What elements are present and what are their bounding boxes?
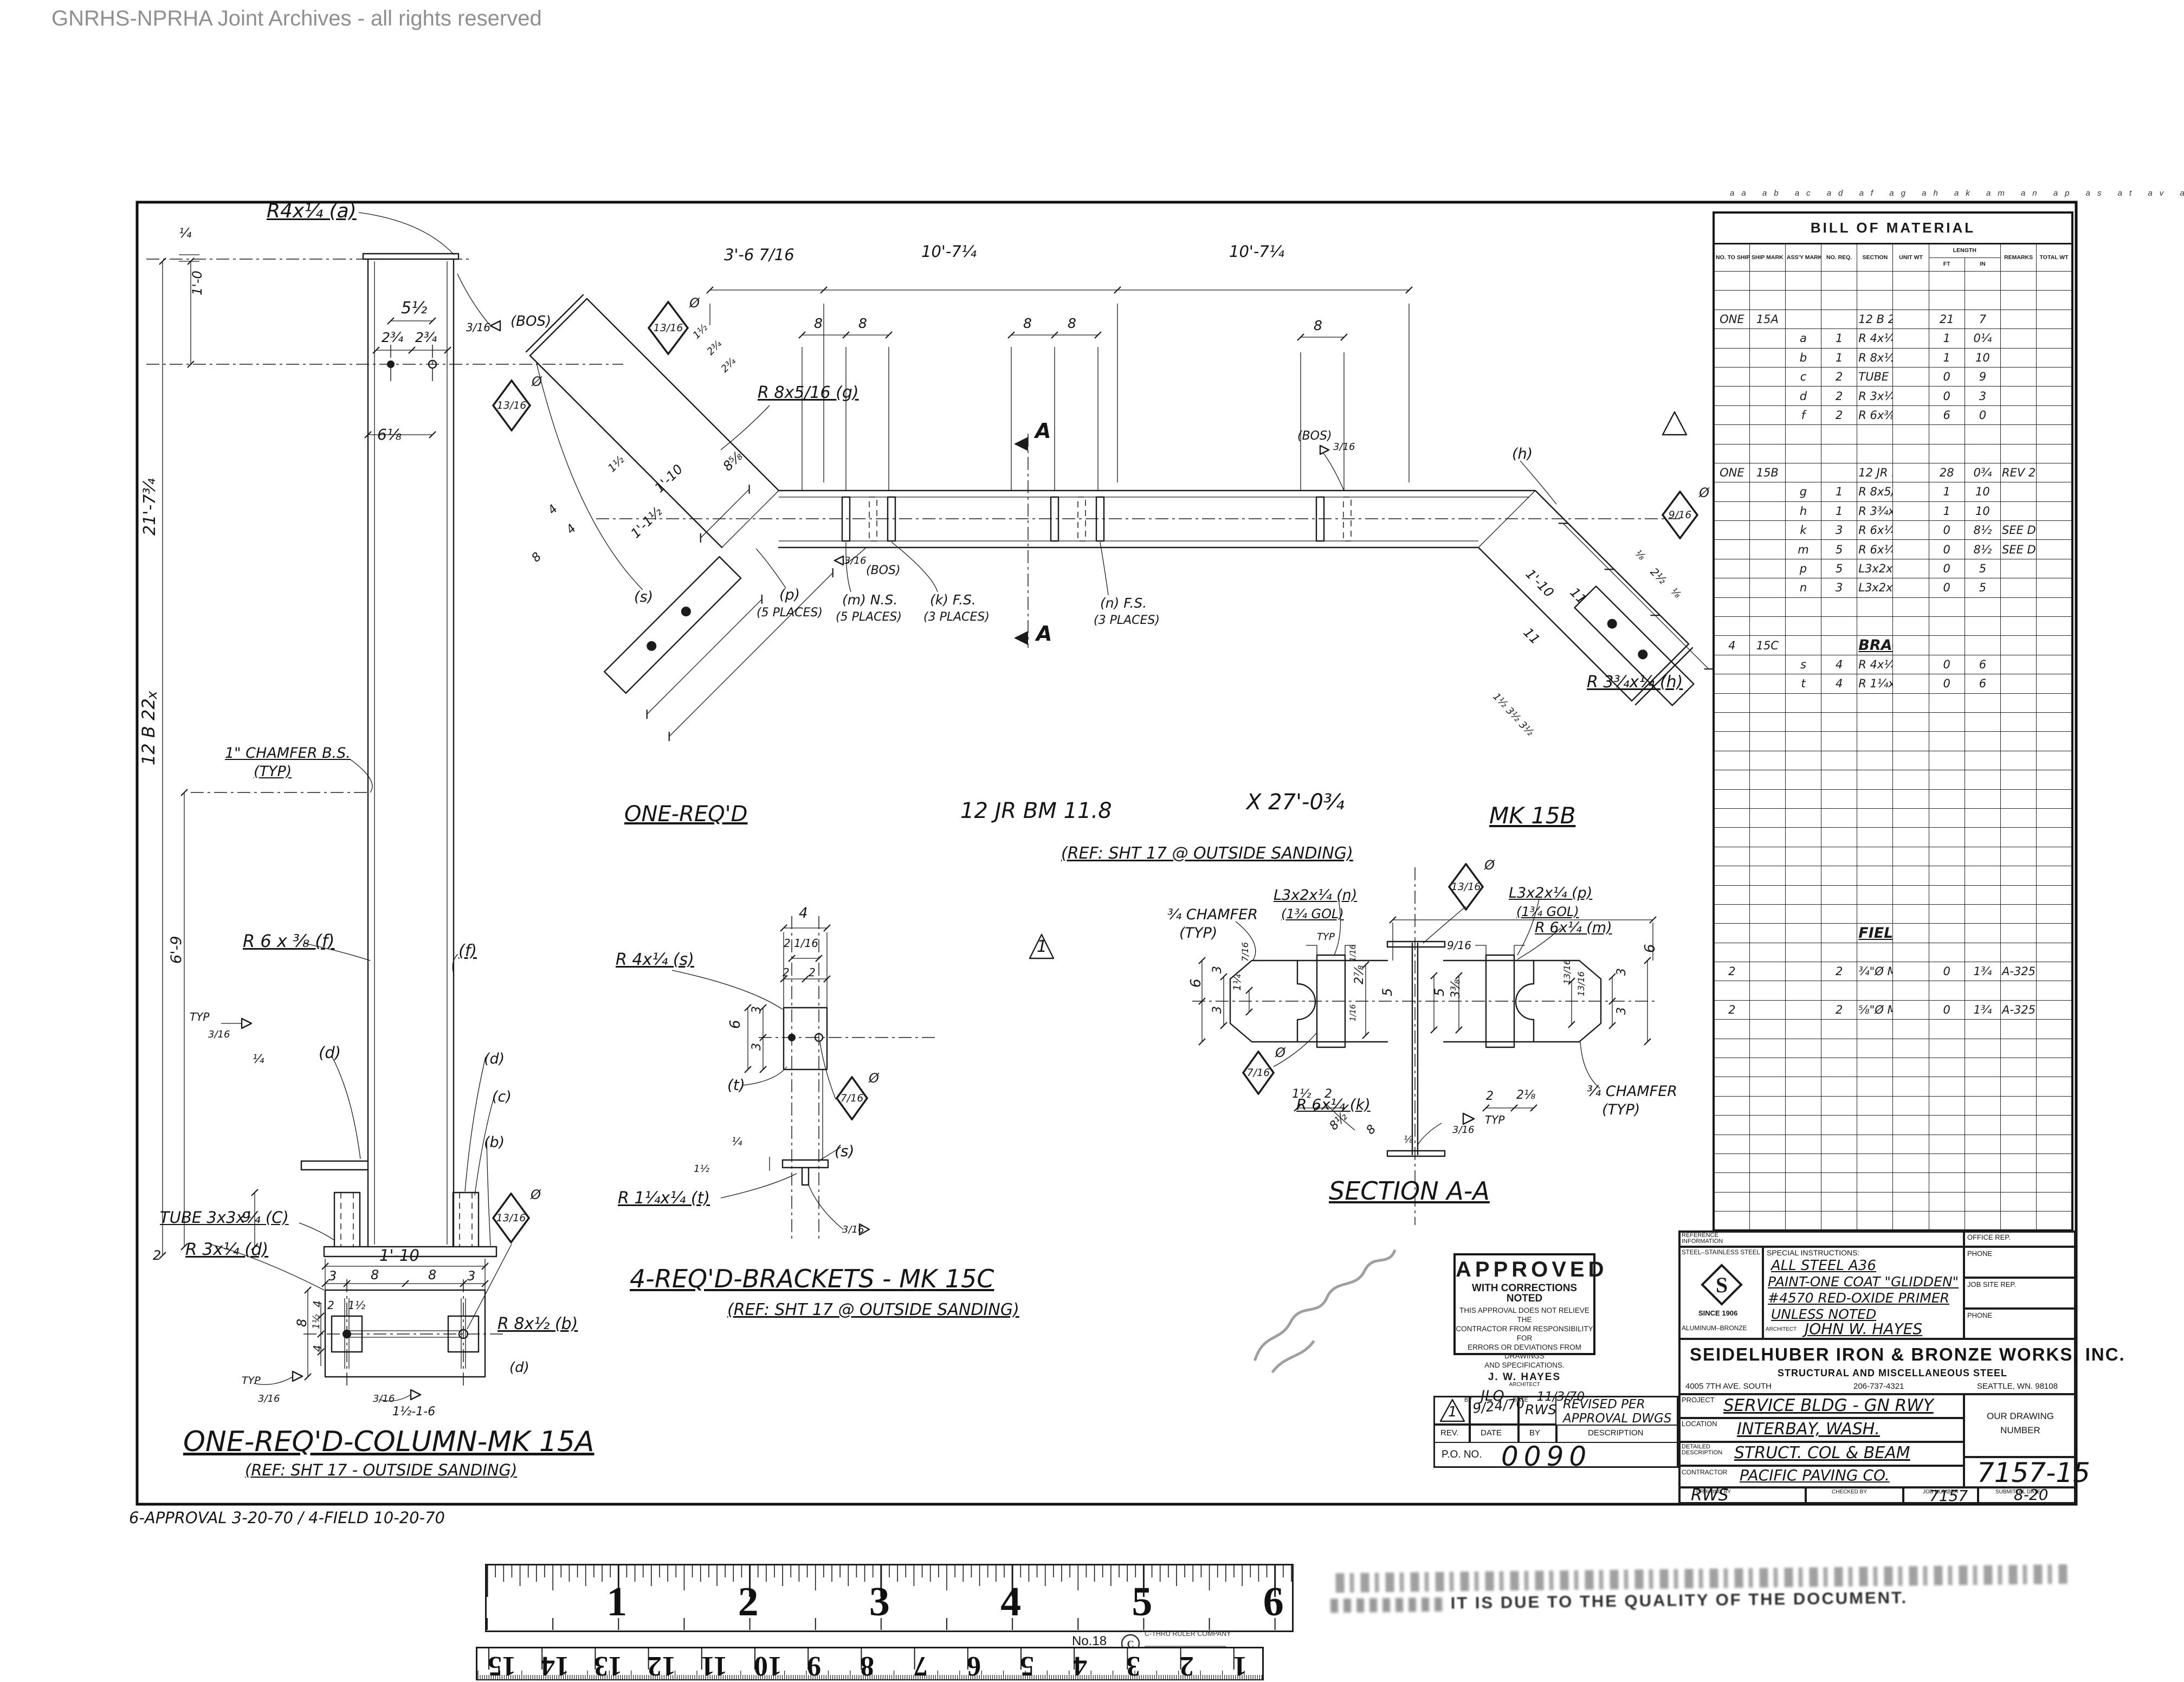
- bom-cell: [1714, 828, 1749, 847]
- bom-cell: [1785, 712, 1821, 731]
- bom-row: m5R 6x¼08½SEE DET: [1714, 540, 2072, 559]
- bom-cell: [1893, 1135, 1929, 1153]
- bom-cell: [1893, 310, 1929, 328]
- bom-cell: [1714, 655, 1749, 674]
- bom-cell: [1749, 1058, 1785, 1077]
- bom-cell: [1785, 885, 1821, 904]
- drawing-annotation: 4: [312, 1300, 323, 1307]
- bom-cell: 4: [1714, 636, 1749, 655]
- bom-cell: [2037, 674, 2072, 693]
- bom-cell: [1965, 291, 2000, 310]
- bom-cell: [1893, 348, 1929, 367]
- ruler-brand: C-THRU RULER COMPANY: [1145, 1631, 1231, 1638]
- bom-cell: 1¾: [1965, 962, 2000, 981]
- drawing-annotation: ¼: [179, 227, 191, 240]
- bom-cell: [1965, 693, 2000, 712]
- bom-cell: [1714, 904, 1749, 923]
- drawing-annotation: 3/16: [258, 1394, 280, 1404]
- bom-cell: [1714, 1192, 1749, 1211]
- reverse-ruler-number: 5: [1020, 1650, 1034, 1682]
- bom-cell: [1857, 272, 1893, 291]
- bom-cell: [1749, 904, 1785, 923]
- bom-cell: [1929, 597, 1965, 616]
- bom-cell: 2: [1821, 962, 1857, 981]
- bom-cell: 21: [1929, 310, 1965, 328]
- bom-cell: ¾"Ø M.BOLT: [1857, 962, 1893, 981]
- bom-cell: 0: [1929, 674, 1965, 693]
- bom-cell: [1893, 962, 1929, 981]
- bom-row: [1714, 847, 2072, 866]
- bom-cell: m: [1785, 540, 1821, 559]
- bom-cell: [1714, 770, 1749, 789]
- bom-cell: [2037, 981, 2072, 1000]
- drawing-annotation: 8: [371, 1268, 379, 1281]
- contractor-label: CONTRACTOR: [1682, 1469, 1727, 1475]
- bom-cell: [1785, 1173, 1821, 1192]
- bom-cell: 7: [1965, 310, 2000, 328]
- bom-cell: [1785, 904, 1821, 923]
- bom-row: [1714, 943, 2072, 962]
- drawing-annotation: 1/16: [1349, 1004, 1357, 1021]
- bom-cell: [1929, 1058, 1965, 1077]
- bom-cell: [1893, 770, 1929, 789]
- bom-cell: ONE: [1714, 463, 1749, 482]
- stamp-body: THIS APPROVAL DOES NOT RELIEVE THE CONTR…: [1456, 1306, 1593, 1370]
- drawing-annotation: 6: [728, 1020, 742, 1029]
- bom-cell: [1893, 904, 1929, 923]
- bom-cell: [1785, 693, 1821, 712]
- drawing-annotation: (p): [779, 588, 800, 602]
- drawing-annotation: 1: [1037, 939, 1047, 955]
- bom-row: [1714, 981, 2072, 1000]
- bom-cell: [2037, 885, 2072, 904]
- bom-cell: 28: [1929, 463, 1965, 482]
- bom-cell: [1714, 1116, 1749, 1135]
- bom-cell: [1785, 866, 1821, 885]
- bom-cell: [2001, 1096, 2037, 1115]
- bom-cell: [1929, 732, 1965, 751]
- drawing-number-label: OUR DRAWING NUMBER: [1982, 1409, 2058, 1437]
- bom-cell: [1929, 272, 1965, 291]
- bom-cell: [1857, 866, 1893, 885]
- bom-cell: [1965, 712, 2000, 731]
- bom-row: [1714, 1039, 2072, 1058]
- drawing-annotation: 12 B 22: [140, 698, 157, 765]
- drawing-annotation: R 3x¼ (d): [185, 1241, 268, 1258]
- bom-cell: [1929, 1153, 1965, 1172]
- drawing-annotation: 8: [295, 1319, 308, 1327]
- bom-cell: [1893, 444, 1929, 463]
- bom-cell: [2001, 712, 2037, 731]
- bom-cell: [1857, 732, 1893, 751]
- bom-cell: 15A: [1749, 310, 1785, 328]
- bom-cell: [1714, 329, 1749, 348]
- bom-cell: [2001, 405, 2037, 424]
- bom-cell: [1893, 329, 1929, 348]
- bom-row: n3L3x2x¼05: [1714, 578, 2072, 597]
- hole-callout-diamond: 13/16Ø: [648, 301, 689, 355]
- drawing-annotation: ¼: [253, 1054, 264, 1066]
- drawing-annotation: 6⅛: [377, 427, 402, 442]
- drawing-annotation: 4: [799, 906, 808, 920]
- hole-callout-diamond: 9/16Ø: [1662, 491, 1698, 539]
- bom-cell: [2001, 272, 2037, 291]
- bom-cell: 0¾: [1965, 463, 2000, 482]
- logo-since: SINCE 1906: [1698, 1310, 1737, 1317]
- bom-cell: [1749, 1173, 1785, 1192]
- bom-cell: [1929, 770, 1965, 789]
- drawing-annotation: (3 PLACES): [1094, 615, 1160, 627]
- bom-cell: [2001, 828, 2037, 847]
- drawing-annotation: 2: [783, 967, 790, 978]
- bom-cell: [1965, 1192, 2000, 1211]
- drawing-annotation: 6: [1189, 978, 1203, 988]
- bom-cell: [1821, 1211, 1857, 1230]
- reverse-ruler-number: 7: [914, 1650, 928, 1682]
- bom-row: p5L3x2x¼05: [1714, 559, 2072, 578]
- bom-cell: c: [1785, 367, 1821, 386]
- bom-cell: 10: [1965, 501, 2000, 520]
- bom-cell: 5: [1821, 559, 1857, 578]
- bom-row: 415CBRACKETS: [1714, 636, 2072, 655]
- bom-row: 22⅝"Ø M.BOLT01¾A-325 H.T.B.: [1714, 1000, 2072, 1019]
- drawing-sheet: GNRHS-NPRHA Joint Archives - all rights …: [0, 0, 2184, 1680]
- bom-cell: 0: [1929, 521, 1965, 540]
- drawing-annotation: 3/16: [1333, 442, 1355, 452]
- bom-cell: 8½: [1965, 540, 2000, 559]
- bom-cell: [1749, 1000, 1785, 1019]
- bom-cell: [1749, 1039, 1785, 1058]
- bom-cell: [2037, 578, 2072, 597]
- bom-cell: [2037, 847, 2072, 866]
- bom-cell: [1785, 1020, 1821, 1039]
- bom-cell: [1965, 847, 2000, 866]
- bom-row: [1714, 291, 2072, 310]
- bom-header: REMARKS: [2001, 244, 2037, 272]
- drawing-annotation: 6'-9: [169, 936, 184, 964]
- bom-cell: [1749, 847, 1785, 866]
- bom-row: [1714, 732, 2072, 751]
- drawing-annotation: (s): [634, 590, 653, 604]
- office-rep-label: OFFICE REP.: [1967, 1234, 2011, 1241]
- drawing-annotation: R 6 x ⅜ (f): [243, 932, 334, 950]
- bom-cell: [1749, 866, 1785, 885]
- bom-cell: [1749, 1135, 1785, 1153]
- revision-by: RWS: [1525, 1403, 1556, 1416]
- bom-cell: [1929, 636, 1965, 655]
- drawing-annotation: 1'-0: [191, 270, 204, 295]
- drawing-annotation: 1/16: [1349, 945, 1357, 962]
- special-instructions-label: SPECIAL INSTRUCTIONS:: [1767, 1249, 1859, 1256]
- bom-cell: [1785, 1135, 1821, 1153]
- bom-cell: [2001, 770, 2037, 789]
- bom-cell: [1749, 405, 1785, 424]
- drawing-annotation: 3/16: [466, 322, 490, 333]
- bom-cell: [1893, 272, 1929, 291]
- drawing-annotation: 2: [153, 1249, 161, 1262]
- bom-row: [1714, 866, 2072, 885]
- bom-cell: h: [1785, 501, 1821, 520]
- bom-cell: [1893, 1058, 1929, 1077]
- bom-cell: [1749, 943, 1785, 962]
- ruler-number: 6: [1263, 1578, 1284, 1626]
- bom-row: [1714, 751, 2072, 770]
- bom-cell: [1749, 885, 1785, 904]
- bom-cell: [1785, 272, 1821, 291]
- bom-cell: [1929, 866, 1965, 885]
- bom-cell: [1893, 367, 1929, 386]
- bom-cell: [1857, 904, 1893, 923]
- bom-cell: [1749, 540, 1785, 559]
- bom-cell: [1785, 291, 1821, 310]
- bom-cell: [1821, 1096, 1857, 1115]
- bom-cell: TUBE 3x3x¼: [1857, 367, 1893, 386]
- bom-cell: [1857, 1135, 1893, 1153]
- bom-cell: R 6x¼: [1857, 521, 1893, 540]
- bom-cell: [1857, 693, 1893, 712]
- bom-cell: [1965, 904, 2000, 923]
- drawing-annotation: 3/16: [844, 556, 866, 566]
- bom-row: ONE15A12 B 22217: [1714, 310, 2072, 328]
- bom-header-ft: FT: [1929, 258, 1965, 272]
- bom-cell: [2001, 578, 2037, 597]
- drawing-annotation: 3: [1616, 968, 1628, 976]
- bom-cell: [1714, 578, 1749, 597]
- submittal-value: 8-20: [2014, 1487, 2049, 1503]
- bom-cell: [1785, 1211, 1821, 1230]
- reverse-ruler-number: 3: [1126, 1650, 1140, 1682]
- svg-text:S: S: [1716, 1273, 1728, 1297]
- bom-cell: [1893, 1020, 1929, 1039]
- bom-cell: [1749, 1211, 1785, 1230]
- bom-cell: [1714, 1211, 1749, 1230]
- bom-cell: [1893, 540, 1929, 559]
- bom-cell: [1714, 732, 1749, 751]
- bom-cell: [1714, 521, 1749, 540]
- bom-cell: [2037, 962, 2072, 981]
- bom-cell: [1857, 425, 1893, 444]
- bom-cell: [2001, 501, 2037, 520]
- bom-cell: [1893, 425, 1929, 444]
- bom-cell: [1893, 291, 1929, 310]
- bom-cell: 5: [1821, 540, 1857, 559]
- bom-cell: [1749, 597, 1785, 616]
- bom-cell: [2037, 924, 2072, 943]
- drawing-annotation: (TYP): [254, 764, 292, 779]
- bom-cell: [1929, 943, 1965, 962]
- bom-cell: BRACKETS: [1857, 636, 1893, 655]
- bom-cell: [1893, 866, 1929, 885]
- bom-row: FIELD BOLTS: [1714, 924, 2072, 943]
- bom-cell: [2037, 597, 2072, 616]
- drawing-annotation: 4: [312, 1345, 323, 1352]
- bom-cell: [1749, 386, 1785, 405]
- bom-cell: p: [1785, 559, 1821, 578]
- bom-cell: [1821, 712, 1857, 731]
- bom-cell: [1893, 1173, 1929, 1192]
- bom-cell: [2037, 943, 2072, 962]
- bom-cell: [1785, 847, 1821, 866]
- drawing-annotation: A: [1036, 623, 1052, 644]
- drawing-annotation: (d): [509, 1361, 529, 1375]
- bom-cell: [1714, 1077, 1749, 1096]
- bom-cell: [1785, 1000, 1821, 1019]
- bom-cell: [1893, 655, 1929, 674]
- bom-cell: [2001, 291, 2037, 310]
- bom-cell: [1857, 444, 1893, 463]
- bom-cell: [1929, 924, 1965, 943]
- bom-cell: R 3x¼: [1857, 386, 1893, 405]
- drawing-annotation: (m) N.S.: [842, 593, 897, 607]
- bom-cell: [1714, 1135, 1749, 1153]
- bom-cell: L3x2x¼: [1857, 578, 1893, 597]
- bom-cell: [1821, 1116, 1857, 1135]
- bom-cell: [1749, 674, 1785, 693]
- bom-cell: [1785, 310, 1821, 328]
- bom-cell: [2001, 866, 2037, 885]
- bom-cell: [1857, 828, 1893, 847]
- bom-cell: [1965, 1039, 2000, 1058]
- bom-cell: [1821, 463, 1857, 482]
- bom-cell: [1857, 885, 1893, 904]
- bom-cell: [1714, 367, 1749, 386]
- hole-callout-diamond: 7/16Ø: [1242, 1051, 1275, 1095]
- bom-cell: [1929, 617, 1965, 636]
- bom-cell: 0: [1965, 405, 2000, 424]
- bom-cell: [1929, 444, 1965, 463]
- bom-cell: [2001, 1211, 2037, 1230]
- bom-cell: [1749, 1096, 1785, 1115]
- bom-cell: [1821, 770, 1857, 789]
- bom-cell: 9: [1965, 367, 2000, 386]
- stamp-architect-name: J. W. HAYES: [1456, 1372, 1593, 1382]
- bom-cell: [1929, 808, 1965, 827]
- bom-cell: [1821, 828, 1857, 847]
- bom-cell: A-325 H.T.B.: [2001, 1000, 2037, 1019]
- bom-cell: [1893, 482, 1929, 501]
- company-city: SEATTLE, WN. 98108: [1977, 1382, 2058, 1390]
- bom-cell: [1965, 885, 2000, 904]
- bom-cell: [1929, 1192, 1965, 1211]
- bom-cell: n: [1785, 578, 1821, 597]
- bom-cell: [1749, 329, 1785, 348]
- bom-cell: [1929, 1135, 1965, 1153]
- bom-cell: [2037, 828, 2072, 847]
- bom-cell: [1965, 981, 2000, 1000]
- drawing-annotation: 8: [1068, 317, 1076, 330]
- bom-cell: b: [1785, 348, 1821, 367]
- bom-cell: [2037, 1020, 2072, 1039]
- reverse-ruler-number: 9: [807, 1650, 821, 1682]
- drawing-annotation: 2⅞: [1354, 965, 1366, 984]
- bom-cell: [1714, 693, 1749, 712]
- drawing-annotation: (1¾ GOL): [1281, 907, 1344, 920]
- drawing-annotation: (5 PLACES): [836, 611, 902, 623]
- bom-cell: [2037, 866, 2072, 885]
- bom-cell: [1785, 1116, 1821, 1135]
- bom-cell: [2001, 655, 2037, 674]
- bom-cell: 0: [1929, 559, 1965, 578]
- bom-cell: [1893, 1039, 1929, 1058]
- architect-label: ARCHITECT: [1766, 1327, 1797, 1332]
- drawing-annotation: 1½: [694, 1164, 709, 1174]
- bom-cell: [1893, 924, 1929, 943]
- bom-cell: [1714, 808, 1749, 827]
- bom-cell: [1749, 732, 1785, 751]
- bom-cell: 6: [1929, 405, 1965, 424]
- drawing-annotation: ONE-REQ'D-COLUMN-MK 15A: [183, 1428, 595, 1456]
- bom-cell: [1893, 578, 1929, 597]
- bom-row: [1714, 617, 2072, 636]
- bom-cell: [2001, 943, 2037, 962]
- drawing-annotation: (REF: SHT 17 @ OUTSIDE SANDING): [727, 1302, 1019, 1318]
- bom-row: d2R 3x¼03: [1714, 386, 2072, 405]
- drawing-annotation: (BOS): [1297, 430, 1332, 442]
- drawing-annotation: 10'-7¼: [921, 244, 977, 260]
- bom-cell: R 3¾x¼: [1857, 501, 1893, 520]
- drawing-annotation: 13/16: [1563, 959, 1572, 984]
- drawing-annotation: 3: [1212, 966, 1224, 974]
- bom-cell: [1714, 885, 1749, 904]
- bom-cell: [1785, 751, 1821, 770]
- bom-cell: [1821, 1058, 1857, 1077]
- bom-cell: [1785, 425, 1821, 444]
- bom-cell: 8½: [1965, 521, 2000, 540]
- drawing-annotation: 12 JR BM 11.8: [960, 800, 1112, 822]
- drawing-annotation: (s): [835, 1144, 854, 1159]
- logo-steel-line: STEEL–STAINLESS STEEL: [1682, 1250, 1760, 1256]
- bom-cell: [1857, 291, 1893, 310]
- bom-cell: 3: [1965, 386, 2000, 405]
- bom-row: k3R 6x¼08½SEE DET: [1714, 521, 2072, 540]
- drawing-annotation: 3/16: [1452, 1125, 1474, 1135]
- bom-cell: [2037, 808, 2072, 827]
- bom-row: b1R 8x½110: [1714, 348, 2072, 367]
- bom-cell: [2037, 367, 2072, 386]
- bom-row: [1714, 272, 2072, 291]
- bom-row: c2TUBE 3x3x¼09: [1714, 367, 2072, 386]
- drawing-annotation: 1½: [312, 1314, 321, 1329]
- bom-cell: [1929, 1211, 1965, 1230]
- bom-cell: [2037, 348, 2072, 367]
- bom-cell: 4: [1821, 674, 1857, 693]
- bom-cell: [1965, 770, 2000, 789]
- bom-cell: [2037, 329, 2072, 348]
- bom-cell: [1749, 789, 1785, 808]
- bom-cell: [1965, 943, 2000, 962]
- bom-cell: [1714, 847, 1749, 866]
- bom-cell: [1857, 808, 1893, 827]
- bom-cell: [2001, 789, 2037, 808]
- bom-cell: [1893, 1096, 1929, 1115]
- bom-row: [1714, 1211, 2072, 1230]
- bom-cell: 1: [1821, 482, 1857, 501]
- ruler-number: 3: [869, 1578, 890, 1626]
- reverse-ruler-number: 10: [754, 1650, 782, 1682]
- bom-header: SHIP MARK: [1749, 244, 1785, 272]
- bom-cell: [1893, 636, 1929, 655]
- drawing-annotation: R 3¾x¼ (h): [1587, 674, 1683, 691]
- architect-name: JOHN W. HAYES: [1805, 1322, 1922, 1337]
- bom-cell: [1857, 1077, 1893, 1096]
- bom-cell: t: [1785, 674, 1821, 693]
- bom-cell: [2037, 291, 2072, 310]
- bom-cell: [1785, 1096, 1821, 1115]
- company-subtitle: STRUCTURAL AND MISCELLANEOUS STEEL: [1778, 1368, 2007, 1378]
- bom-cell: 5: [1965, 559, 2000, 578]
- revision-header-date: DATE: [1481, 1429, 1502, 1437]
- bom-cell: [2037, 751, 2072, 770]
